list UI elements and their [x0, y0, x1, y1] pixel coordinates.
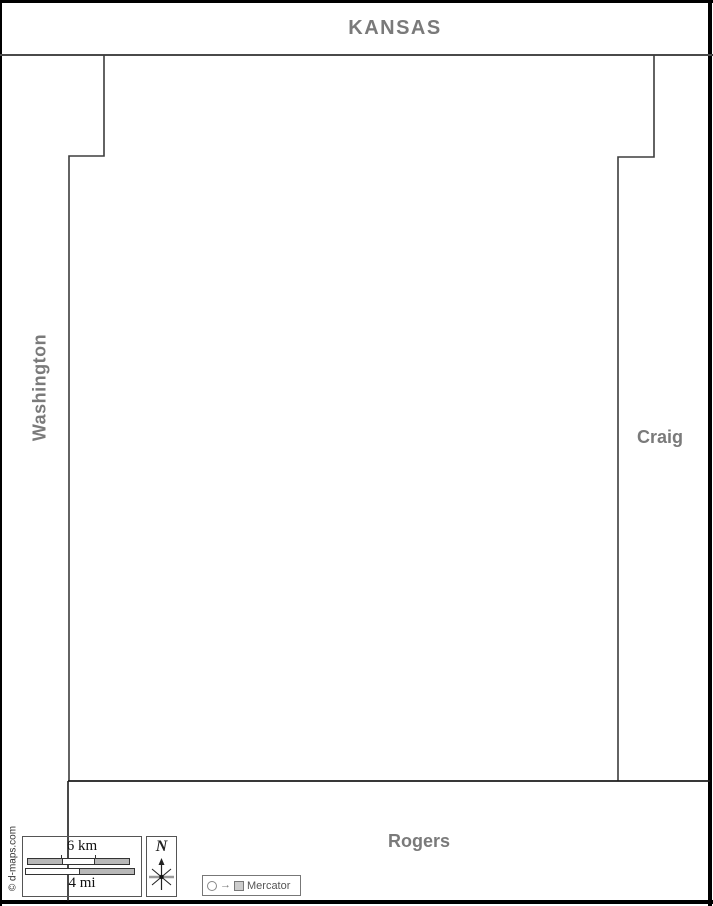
north-indicator-box: N	[146, 836, 177, 897]
globe-circle-icon	[207, 881, 217, 891]
neighbor-label-washington: Washington	[30, 318, 51, 458]
scale-segment	[80, 869, 134, 874]
scale-mi-label: 4 mi	[23, 875, 141, 892]
scale-bar-box: 6 km 4 mi	[22, 836, 142, 897]
arrow-right-icon: →	[220, 880, 231, 891]
county-border-lines	[0, 0, 713, 906]
flat-map-square-icon	[234, 881, 244, 891]
scale-km-label: 6 km	[23, 838, 141, 855]
map-credit: © d-maps.com	[8, 799, 19, 906]
county-outline-map: KANSAS Washington Craig Rogers 6 km 4 mi…	[0, 0, 713, 906]
scale-segment	[62, 859, 95, 864]
scale-mi-bar	[25, 868, 135, 875]
scale-segment	[28, 859, 62, 864]
neighbor-label-kansas: KANSAS	[340, 17, 450, 40]
neighbor-label-craig: Craig	[637, 427, 683, 448]
scale-segment	[26, 869, 80, 874]
projection-legend-box: → Mercator	[202, 875, 301, 896]
north-letter: N	[147, 838, 176, 856]
projection-name: Mercator	[247, 880, 290, 892]
scale-km-bar	[27, 858, 130, 865]
compass-star-icon	[147, 856, 176, 894]
scale-segment	[95, 859, 129, 864]
neighbor-label-rogers: Rogers	[339, 831, 499, 852]
